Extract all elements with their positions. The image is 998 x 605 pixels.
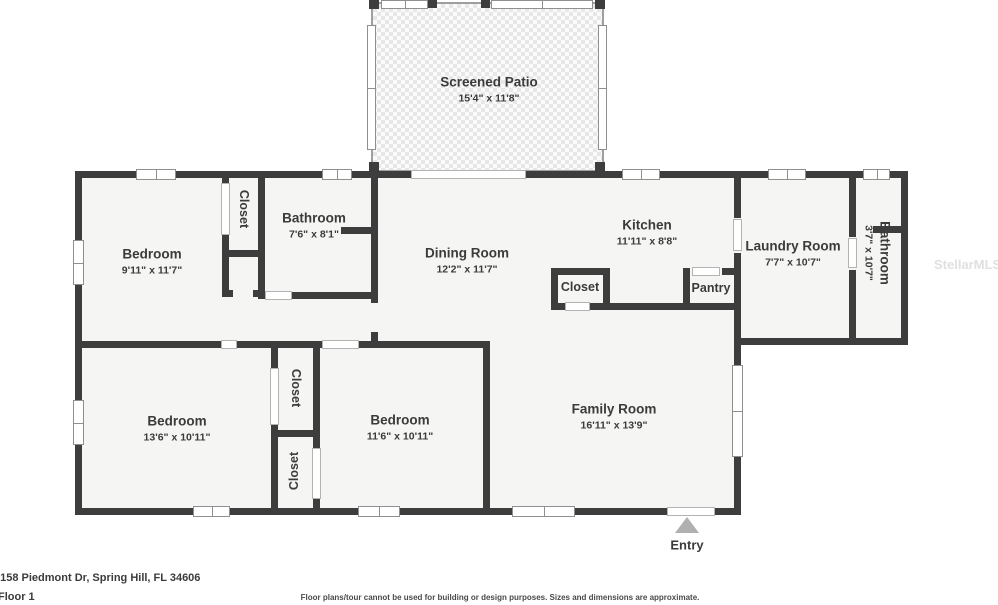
wall-segment	[258, 171, 265, 299]
wall-segment	[271, 425, 278, 508]
window	[73, 240, 84, 285]
room-name: Laundry Room	[745, 239, 840, 256]
patio-screen-window	[491, 0, 593, 9]
door-opening	[312, 448, 321, 499]
wall-segment	[483, 341, 490, 515]
room-name: Bathroom	[282, 211, 346, 228]
room-name: Closet	[287, 452, 303, 490]
room-dims: 16'11" x 13'9"	[581, 419, 648, 432]
wall-segment	[734, 338, 908, 345]
room-name: Closet	[287, 369, 303, 407]
patio-post	[369, 0, 379, 9]
door-opening	[221, 183, 230, 235]
wall-segment	[734, 253, 741, 338]
wall-segment	[722, 268, 741, 275]
watermark: StellarMLS	[934, 257, 998, 272]
wall-segment	[341, 227, 378, 234]
door-opening	[692, 267, 720, 276]
room-name: Bathroom	[876, 221, 893, 285]
wall-segment	[371, 332, 378, 341]
wall-segment	[222, 234, 229, 250]
window	[512, 506, 575, 517]
room-name: Kitchen	[622, 218, 672, 235]
room-label-bathroom-right: Bathroom 3'7" x 10'7"	[862, 221, 893, 285]
wall-segment	[551, 268, 610, 275]
floor-plan: Screened Patio 15'4" x 11'8" Bedroom 9'1…	[0, 0, 998, 605]
room-dims: 15'4" x 11'8"	[458, 92, 519, 105]
wall-segment	[291, 292, 378, 299]
window	[622, 169, 660, 180]
room-dims: 3'7" x 10'7"	[862, 225, 875, 281]
room-name: Bedroom	[370, 413, 429, 430]
room-dims: 13'6" x 10'11"	[144, 431, 211, 444]
door-opening	[733, 219, 742, 251]
room-label-bedroom-bottom-mid: Bedroom 11'6" x 10'11"	[367, 413, 433, 444]
wall-segment	[222, 290, 233, 297]
patio-screen-window	[381, 0, 428, 9]
room-dims: 11'6" x 10'11"	[367, 430, 433, 443]
window	[863, 169, 890, 180]
room-dims: 12'2" x 11'7"	[436, 263, 497, 276]
room-label-closet-lower: Closet	[287, 452, 303, 490]
door-opening	[265, 291, 292, 300]
door-opening	[270, 368, 279, 425]
room-label-closet-upper: Closet	[287, 369, 303, 407]
patio-screen-window	[598, 25, 607, 150]
wall-segment	[603, 303, 741, 310]
patio-screen-window	[367, 25, 376, 150]
patio-post	[595, 0, 605, 9]
room-dims: 9'11" x 11'7"	[122, 264, 183, 277]
entry-arrow-icon	[675, 517, 699, 533]
wall-segment	[271, 348, 278, 368]
room-label-kitchen: Kitchen 11'11" x 8'8"	[617, 218, 678, 249]
address-text: 6158 Piedmont Dr, Spring Hill, FL 34606	[0, 572, 200, 584]
room-label-closet-mid: Closet	[561, 280, 599, 296]
floor-label: Floor 1	[0, 591, 35, 603]
window	[136, 169, 176, 180]
patio-post	[481, 0, 490, 8]
window	[193, 506, 230, 517]
door-opening	[565, 302, 590, 311]
room-name: Closet	[235, 190, 251, 228]
window	[322, 169, 352, 180]
room-dims: 11'11" x 8'8"	[617, 235, 678, 248]
window	[358, 506, 400, 517]
room-name: Bedroom	[147, 414, 206, 431]
wall-segment	[551, 303, 565, 310]
patio-slider-door	[411, 170, 526, 179]
room-name: Closet	[561, 280, 599, 296]
wall-segment	[313, 498, 320, 508]
window	[732, 365, 743, 457]
entry-door	[667, 507, 715, 516]
wall-segment	[271, 430, 320, 437]
wall-segment	[75, 508, 741, 515]
room-label-dining-room: Dining Room 12'2" x 11'7"	[425, 246, 509, 277]
entry-label: Entry	[670, 538, 703, 553]
room-label-bedroom-bottom-left: Bedroom 13'6" x 10'11"	[144, 414, 211, 445]
room-label-closet-top-left: Closet	[235, 190, 251, 228]
room-label-bedroom-top-left: Bedroom 9'11" x 11'7"	[122, 247, 183, 278]
room-label-laundry-room: Laundry Room 7'7" x 10'7"	[745, 239, 840, 270]
patio-post	[428, 0, 437, 8]
wall-segment	[734, 171, 741, 218]
wall-segment	[683, 268, 690, 310]
room-dims: 7'6" x 8'1"	[289, 228, 339, 241]
room-label-family-room: Family Room 16'11" x 13'9"	[572, 402, 657, 433]
room-label-bathroom-top: Bathroom 7'6" x 8'1"	[282, 211, 346, 242]
wall-segment	[901, 171, 908, 345]
window	[768, 169, 806, 180]
room-name: Dining Room	[425, 246, 509, 263]
room-name: Family Room	[572, 402, 657, 419]
room-label-pantry: Pantry	[692, 281, 731, 297]
room-dims: 7'7" x 10'7"	[765, 256, 821, 269]
wall-segment	[849, 171, 856, 237]
wall-segment	[358, 341, 490, 348]
room-name: Bedroom	[122, 247, 181, 264]
wall-segment	[75, 341, 222, 348]
wall-segment	[849, 270, 856, 338]
door-opening	[848, 238, 857, 268]
wall-segment	[371, 171, 378, 303]
wall-segment	[253, 290, 265, 297]
door-opening	[322, 340, 359, 349]
disclaimer-text: Floor plans/tour cannot be used for buil…	[301, 593, 700, 602]
room-label-screened-patio: Screened Patio 15'4" x 11'8"	[440, 75, 538, 106]
room-name: Pantry	[692, 281, 731, 297]
wall-segment	[236, 341, 322, 348]
window	[73, 400, 84, 445]
room-name: Screened Patio	[440, 75, 538, 92]
door-opening	[221, 340, 237, 349]
